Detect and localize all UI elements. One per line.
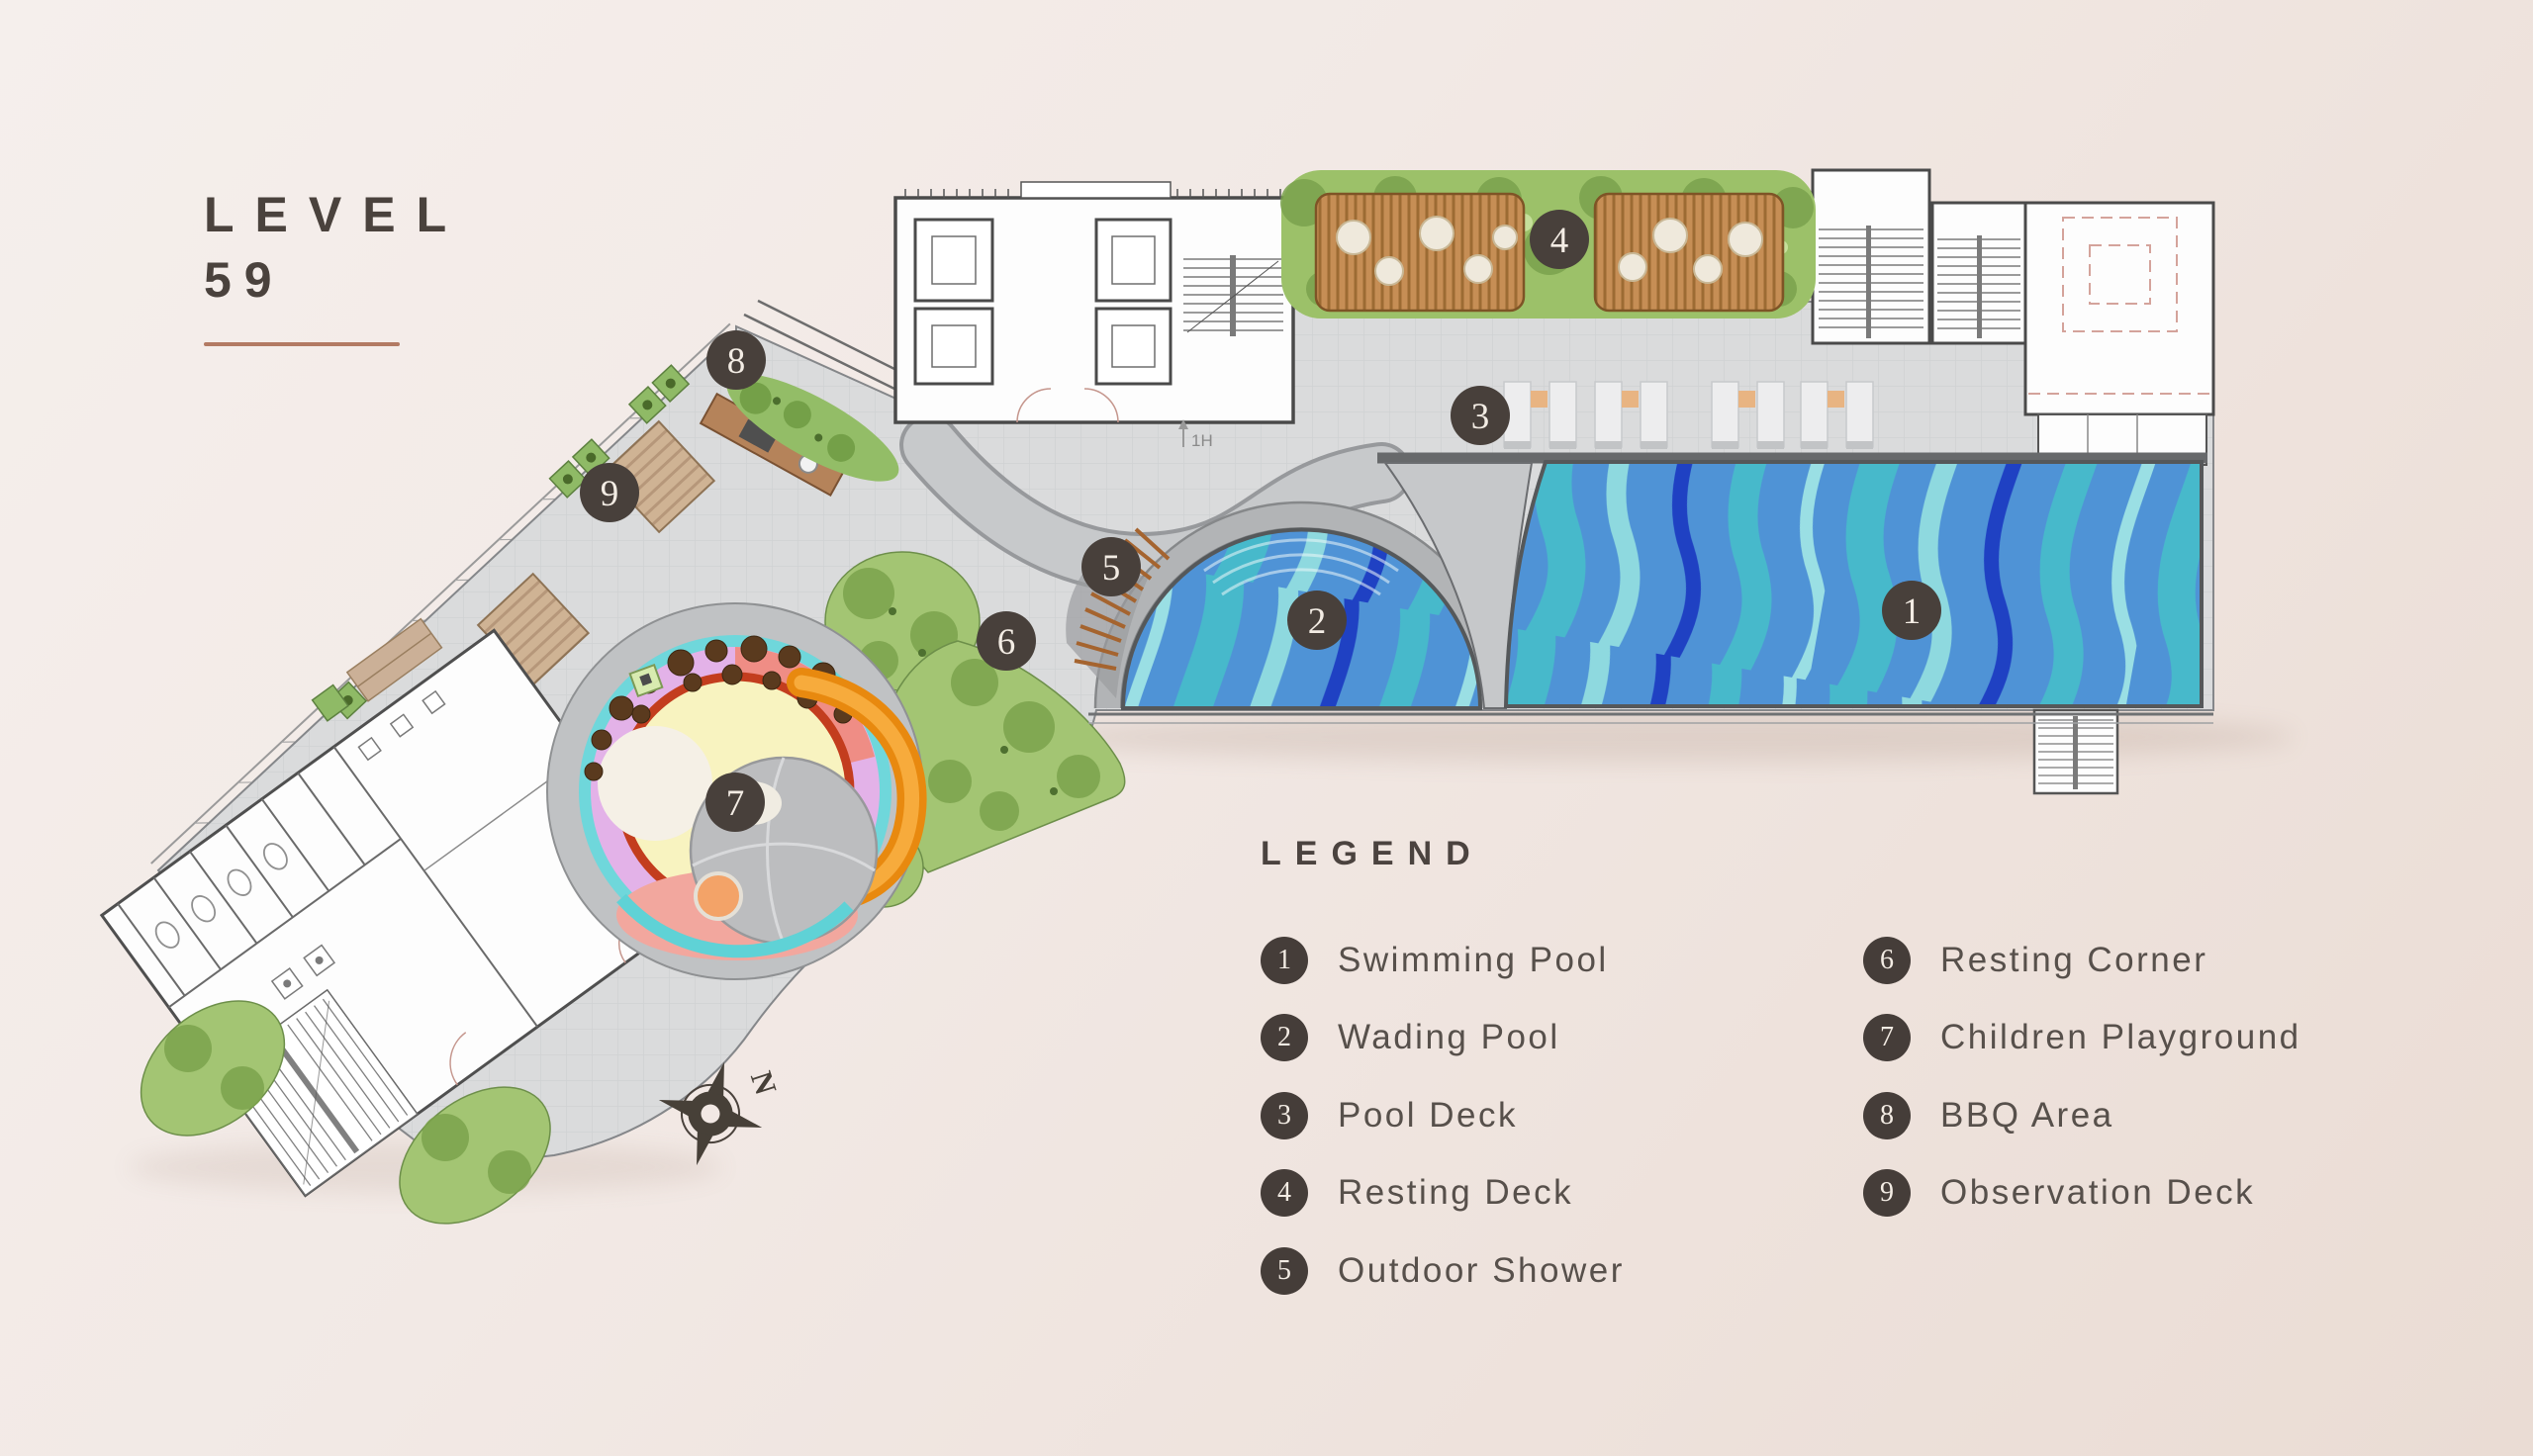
legend-item-wading-pool: 2 Wading Pool (1261, 1014, 1560, 1061)
svg-text:1: 1 (1903, 591, 1922, 632)
plan-marker-4: 4 (1530, 210, 1589, 269)
stair-direction-note: 1H (1191, 431, 1213, 450)
legend-label: Outdoor Shower (1338, 1251, 1625, 1291)
plan-marker-5: 5 (1081, 537, 1141, 596)
swimming-pool (1506, 462, 2202, 706)
building-elevator-lobby: 1H (895, 182, 1293, 450)
plan-marker-3: 3 (1451, 386, 1510, 445)
legend-badge: 6 (1863, 937, 1911, 984)
svg-text:8: 8 (727, 341, 746, 382)
legend-item-outdoor-shower: 5 Outdoor Shower (1261, 1247, 1625, 1295)
page-title: LEVEL 59 (204, 190, 467, 346)
legend-badge: 8 (1863, 1092, 1911, 1139)
legend-label: Children Playground (1940, 1018, 2301, 1057)
legend-item-observation-deck: 9 Observation Deck (1863, 1169, 2255, 1217)
title-underline (204, 342, 400, 346)
legend-badge: 5 (1261, 1247, 1308, 1295)
legend-badge: 7 (1863, 1014, 1911, 1061)
legend: LEGEND 1 Swimming Pool 2 Wading Pool 3 P… (1261, 835, 2487, 1349)
legend-label: Observation Deck (1940, 1173, 2255, 1213)
plan-marker-6: 6 (977, 611, 1036, 671)
legend-badge: 4 (1261, 1169, 1308, 1217)
plan-marker-8: 8 (706, 330, 766, 390)
svg-text:7: 7 (726, 783, 745, 824)
legend-item-children-playground: 7 Children Playground (1863, 1014, 2301, 1061)
plan-marker-7: 7 (705, 773, 765, 832)
plan-marker-9: 9 (580, 463, 639, 522)
legend-label: Wading Pool (1338, 1018, 1560, 1057)
svg-text:4: 4 (1550, 221, 1569, 261)
plan-marker-1: 1 (1882, 581, 1941, 640)
svg-text:3: 3 (1471, 397, 1490, 437)
legend-label: BBQ Area (1940, 1096, 2114, 1136)
level-title-line2: 59 (204, 255, 467, 305)
level-title-line1: LEVEL (204, 190, 467, 239)
legend-badge: 1 (1261, 937, 1308, 984)
north-indicator-label: N (744, 1067, 784, 1099)
legend-item-bbq-area: 8 BBQ Area (1863, 1092, 2114, 1139)
legend-item-resting-deck: 4 Resting Deck (1261, 1169, 1573, 1217)
legend-badge: 3 (1261, 1092, 1308, 1139)
legend-item-pool-deck: 3 Pool Deck (1261, 1092, 1518, 1139)
legend-badge: 9 (1863, 1169, 1911, 1217)
plan-marker-2: 2 (1287, 591, 1347, 650)
legend-badge: 2 (1261, 1014, 1308, 1061)
legend-item-swimming-pool: 1 Swimming Pool (1261, 937, 1609, 984)
legend-label: Resting Corner (1940, 941, 2207, 980)
svg-text:5: 5 (1102, 548, 1121, 589)
svg-text:9: 9 (601, 474, 619, 514)
legend-label: Resting Deck (1338, 1173, 1573, 1213)
svg-text:2: 2 (1308, 601, 1327, 642)
legend-label: Swimming Pool (1338, 941, 1609, 980)
legend-item-resting-corner: 6 Resting Corner (1863, 937, 2207, 984)
legend-label: Pool Deck (1338, 1096, 1518, 1136)
legend-heading: LEGEND (1261, 835, 2487, 873)
svg-text:6: 6 (997, 622, 1016, 663)
